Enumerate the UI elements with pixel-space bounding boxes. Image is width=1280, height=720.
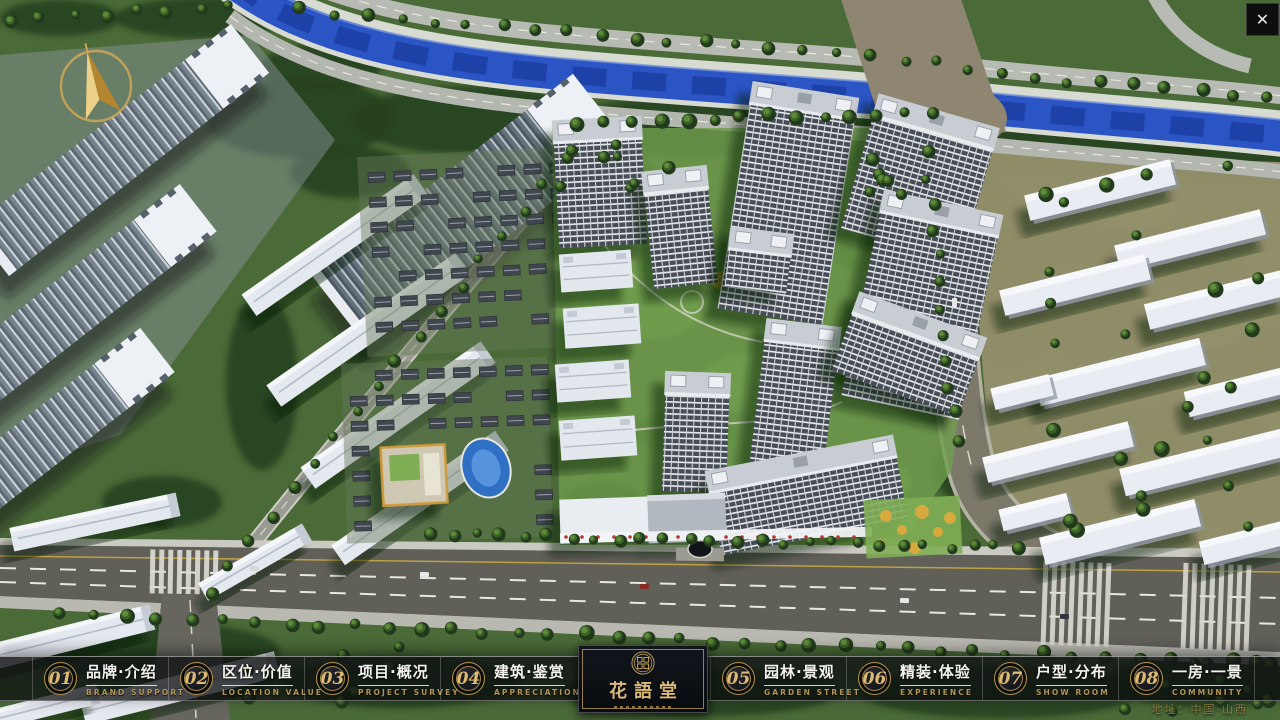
nav-title: 园林·景观 [764, 661, 835, 686]
nav-item-floorplan[interactable]: 07 户型·分布 SHOW ROOM [982, 657, 1118, 700]
nav-number-badge: 03 [316, 662, 349, 695]
nav-number-badge: 04 [452, 662, 485, 695]
close-button[interactable]: ✕ [1246, 3, 1279, 36]
project-address: 地址：中国·山西 [1152, 701, 1249, 717]
close-icon: ✕ [1256, 12, 1269, 28]
nav-subtitle: SHOW ROOM [1036, 688, 1110, 697]
brand-seal-icon [631, 651, 655, 675]
nav-item-community[interactable]: 08 一房·一景 COMMUNITY [1118, 657, 1254, 700]
nav-subtitle: COMMUNITY [1172, 688, 1243, 697]
nav-number-badge: 02 [180, 662, 213, 695]
nav-title: 品牌·介绍 [86, 661, 157, 686]
nav-subtitle: EXPERIENCE [900, 688, 973, 697]
nav-title: 区位·价值 [222, 661, 293, 686]
nav-item-location[interactable]: 02 区位·价值 LOCATION VALUE [168, 657, 304, 700]
brand-name: 花語堂 [602, 677, 684, 703]
nav-item-experience[interactable]: 06 精装·体验 EXPERIENCE [846, 657, 982, 700]
nav-divider [1254, 657, 1255, 700]
nav-item-architecture[interactable]: 04 建筑·鉴赏 APPRECIATION [440, 657, 576, 700]
nav-item-brand[interactable]: 01 品牌·介绍 BRAND SUPPORT [32, 657, 168, 700]
nav-title: 建筑·鉴赏 [494, 661, 565, 686]
masterplan-app-window: ✕ 01 品牌·介绍 BRAND SUPPORT 02 区位·价值 LOCATI… [0, 0, 1280, 720]
nav-subtitle: APPRECIATION [494, 688, 581, 697]
masterplan-render [0, 0, 1280, 720]
nav-number-badge: 05 [722, 662, 755, 695]
nav-title: 一房·一景 [1172, 661, 1243, 686]
nav-number-badge: 08 [1130, 662, 1163, 695]
nav-title: 精装·体验 [900, 661, 971, 686]
brand-logo-panel[interactable]: 花語堂 [578, 645, 708, 713]
nav-title: 项目·概况 [358, 661, 429, 686]
nav-number-badge: 01 [44, 662, 77, 695]
brand-subtext-rule [614, 706, 672, 708]
nav-number-badge: 06 [858, 662, 891, 695]
nav-title: 户型·分布 [1036, 661, 1107, 686]
nav-item-project[interactable]: 03 项目·概况 PROJECT SURVEY [304, 657, 440, 700]
nav-item-garden[interactable]: 05 园林·景观 GARDEN STREET [710, 657, 846, 700]
nav-number-badge: 07 [994, 662, 1027, 695]
